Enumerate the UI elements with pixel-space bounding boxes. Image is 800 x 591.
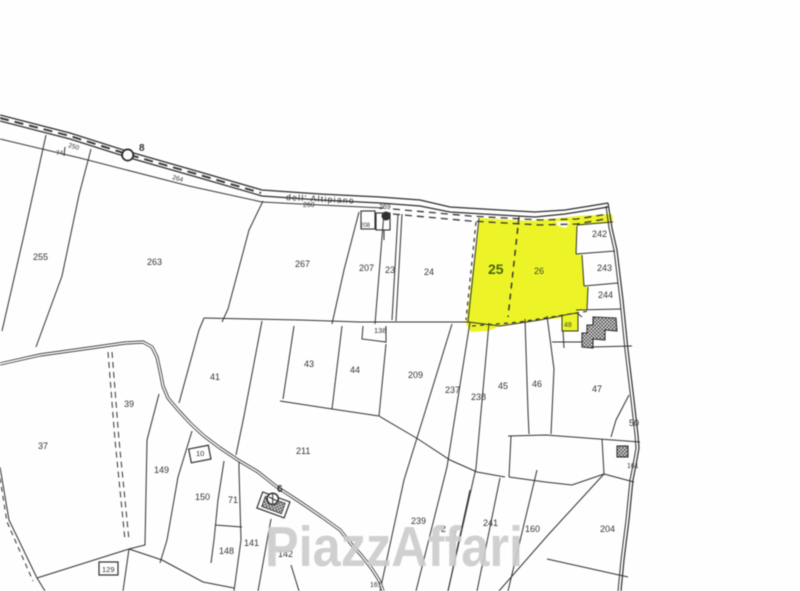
svg-text:48: 48 [564, 322, 572, 329]
svg-text:41: 41 [210, 372, 220, 382]
svg-text:209: 209 [408, 370, 423, 380]
svg-text:50: 50 [629, 418, 639, 428]
svg-text:238: 238 [471, 392, 486, 402]
svg-text:161: 161 [627, 463, 639, 470]
svg-text:37: 37 [38, 441, 48, 451]
svg-text:267: 267 [295, 259, 310, 269]
svg-text:43: 43 [304, 359, 314, 369]
svg-text:161: 161 [370, 582, 382, 589]
svg-text:263: 263 [147, 257, 162, 267]
svg-text:44: 44 [350, 365, 360, 375]
svg-text:242: 242 [592, 229, 607, 239]
svg-text:244: 244 [598, 290, 613, 300]
svg-text:71: 71 [228, 495, 238, 505]
svg-text:46: 46 [532, 379, 542, 389]
svg-text:204: 204 [600, 524, 615, 534]
svg-text:74: 74 [56, 150, 64, 157]
svg-text:260: 260 [303, 202, 315, 209]
svg-text:26: 26 [534, 266, 544, 276]
svg-text:23: 23 [385, 265, 395, 275]
svg-text:25: 25 [488, 261, 504, 277]
svg-text:150: 150 [195, 492, 210, 502]
svg-text:47: 47 [592, 384, 602, 394]
svg-text:138: 138 [374, 326, 387, 335]
svg-text:129: 129 [102, 565, 115, 574]
svg-text:211: 211 [296, 446, 310, 456]
svg-text:141: 141 [244, 538, 259, 548]
svg-text:160: 160 [525, 524, 540, 534]
svg-text:149: 149 [154, 465, 169, 475]
svg-text:PiazzAffari: PiazzAffari [265, 515, 523, 579]
svg-text:8: 8 [139, 143, 145, 154]
svg-text:255: 255 [33, 252, 48, 262]
svg-text:148: 148 [219, 546, 234, 556]
svg-text:207: 207 [359, 263, 374, 273]
svg-text:39: 39 [124, 399, 134, 409]
svg-text:24: 24 [424, 267, 434, 277]
svg-text:208: 208 [360, 223, 371, 229]
svg-text:10: 10 [196, 449, 204, 458]
svg-text:6: 6 [277, 484, 283, 495]
svg-text:243: 243 [597, 263, 612, 273]
svg-text:269: 269 [379, 204, 391, 211]
svg-text:237: 237 [445, 385, 460, 395]
svg-text:45: 45 [498, 381, 508, 391]
